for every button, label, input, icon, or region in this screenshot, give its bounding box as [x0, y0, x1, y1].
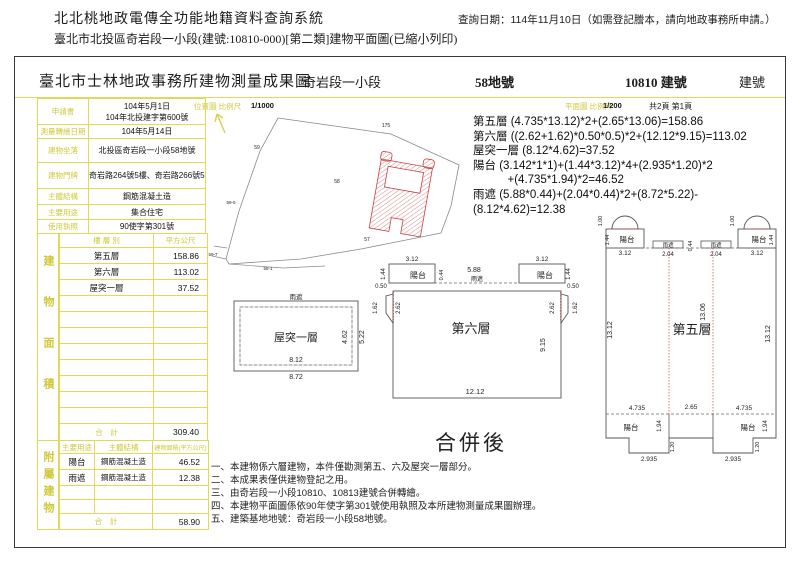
- dimension-label: 5.22: [359, 330, 366, 344]
- dimension-label: 9.15: [540, 338, 547, 352]
- note-line: 一、本建物係六層建物，本件僅勘測第五、六及屋突一層部分。: [211, 461, 541, 474]
- roof-plan: 雨遮屋突一層8.128.724.625.22: [234, 292, 366, 381]
- dimension-label: 2.62: [396, 302, 402, 314]
- dimension-label: 0.44: [439, 270, 445, 281]
- dimension-label: 1.00: [730, 216, 736, 227]
- dimension-label: 0.50: [375, 284, 387, 290]
- dimension-label: 陽台: [741, 422, 756, 432]
- query-date: 查詢日期：114年11月10日（如需登記謄本，請向地政事務所申請。）: [458, 12, 776, 27]
- dimension-label: 屋突一層: [274, 330, 318, 344]
- boundary-spur: [229, 264, 325, 268]
- formula-line: 第五層 (4.735*13.12)*2+(2.65*13.06)=158.86: [473, 115, 785, 130]
- floor5-plan-labels: 1.001.00陽台陽台1.441.443.123.12雨遮雨遮2.042.04…: [598, 216, 775, 463]
- dimension-label: 雨遮: [290, 292, 304, 301]
- dimension-label: 陽台: [537, 270, 553, 280]
- query-system-page: 北北桃地政電傳全功能地籍資料查詢系統 查詢日期：114年11月10日（如需登記謄…: [0, 0, 800, 565]
- dimension-label: 3.12: [406, 256, 419, 263]
- formula-line: +(4.735*1.94)*2=46.52: [473, 173, 785, 188]
- dimension-label: 第五層: [672, 322, 711, 337]
- dimension-label: 1.62: [373, 302, 379, 314]
- dimension-label: 58-1: [263, 266, 273, 271]
- dimension-label: 2.935: [641, 456, 658, 463]
- dimension-label: 第六層: [451, 321, 490, 336]
- note-line: 二、本成果表僅供建物登記之用。: [211, 474, 541, 487]
- dimension-label: 3.12: [751, 250, 764, 257]
- area-formulas: 第五層 (4.735*13.12)*2+(2.65*13.06)=158.86第…: [473, 115, 785, 217]
- dimension-label: 0.44: [688, 241, 694, 252]
- dimension-label: 57: [364, 237, 370, 243]
- dimension-label: 3.12: [536, 256, 549, 263]
- dimension-label: 8.12: [289, 357, 303, 364]
- dimension-label: 8.72: [289, 374, 303, 381]
- dimension-label: 雨遮: [662, 241, 674, 249]
- notes-list: 一、本建物係六層建物，本件僅勘測第五、六及屋突一層部分。二、本成果表僅供建物登記…: [211, 461, 541, 526]
- dimension-label: 陽台: [752, 234, 767, 244]
- dimension-label: 1.20: [755, 442, 761, 453]
- floor6-plan: 3.123.12陽台陽台1.441.445.88雨遮0.440.500.501.…: [373, 256, 579, 398]
- dimension-label: 陽台: [410, 270, 426, 280]
- dimension-label: 1.00: [598, 216, 604, 227]
- formula-line: 雨遮 (5.88*0.44)+(2.04*0.44)*2+(8.72*5.22)…: [473, 188, 785, 217]
- boundary-spur: [214, 246, 227, 248]
- dimension-label: 2.04: [710, 252, 722, 258]
- dimension-label: 59-7: [208, 252, 218, 257]
- formula-line: 第六層 ((2.62+1.62)*0.50*0.5)*2+(12.12*9.15…: [473, 130, 785, 145]
- survey-result-sheet: 臺北市士林地政事務所建物測量成果圖 奇岩段一小段 58地號 10810 建號 建…: [14, 56, 786, 548]
- dimension-label: 4.735: [629, 405, 646, 412]
- merged-label: 合併後: [435, 427, 507, 457]
- dimension-label: 1.44: [605, 235, 611, 246]
- dimension-label: 0.50: [567, 284, 579, 290]
- dimension-label: 陽台: [620, 234, 635, 244]
- dimension-label: 1.44: [769, 235, 775, 246]
- dimension-label: 2.935: [725, 456, 742, 463]
- note-line: 四、本建物平面圖係依90年使字第301號使用執照及本所建物測量成果圖辦理。: [211, 500, 541, 513]
- dimension-label: 175: [382, 123, 391, 129]
- formula-line: 屋突一層 (8.12*4.62)=37.52: [473, 144, 785, 159]
- dimension-label: 1.62: [573, 302, 579, 314]
- dimension-label: 雨遮: [710, 241, 722, 249]
- dimension-label: 1.20: [670, 442, 676, 453]
- floor6-plan-labels: 3.123.12陽台陽台1.441.445.88雨遮0.440.500.501.…: [373, 256, 579, 396]
- dimension-label: 13.06: [700, 303, 707, 321]
- system-title: 北北桃地政電傳全功能地籍資料查詢系統: [54, 8, 324, 28]
- note-line: 五、建築基地地號：奇岩段一小段58地號。: [211, 513, 541, 526]
- location-map: 1755959-559-758-15857: [208, 118, 459, 271]
- dimension-label: 3.12: [619, 250, 632, 257]
- dimension-label: 陽台: [624, 422, 639, 432]
- dimension-label: 5.88: [467, 267, 481, 274]
- dimension-label: 2.65: [685, 404, 698, 411]
- dimension-label: 13.12: [607, 321, 614, 339]
- document-subtitle: 臺北市北投區奇岩段一小段(建號:10810-000)[第二類]建物平面圖(已縮小…: [54, 30, 457, 47]
- note-line: 三、由奇岩段一小段10810、10813建號合併轉繪。: [211, 487, 541, 500]
- formula-line: 陽台 (3.142*1*1)+(1.44*3.12)*4+(2.935*1.20…: [473, 159, 785, 174]
- dimension-label: 13.12: [765, 325, 772, 343]
- dimension-label: 58: [334, 179, 340, 185]
- building-footprint: [368, 151, 435, 237]
- dimension-label: 雨遮: [471, 275, 483, 283]
- dimension-label: 1.44: [381, 268, 387, 280]
- dimension-label: 2.62: [550, 302, 556, 314]
- dimension-label: 4.62: [342, 330, 349, 344]
- dimension-label: 2.04: [662, 252, 674, 258]
- dimension-label: 59-5: [226, 200, 236, 205]
- floor5-plan: 1.001.00陽台陽台1.441.443.123.12雨遮雨遮2.042.04…: [598, 216, 776, 463]
- dimension-label: 1.94: [657, 420, 663, 432]
- dimension-label: 1.44: [566, 268, 572, 280]
- dimension-label: 59: [254, 145, 260, 151]
- dimension-label: 4.735: [736, 405, 753, 412]
- dimension-label: 12.12: [466, 387, 485, 396]
- dimension-label: 1.94: [763, 420, 769, 432]
